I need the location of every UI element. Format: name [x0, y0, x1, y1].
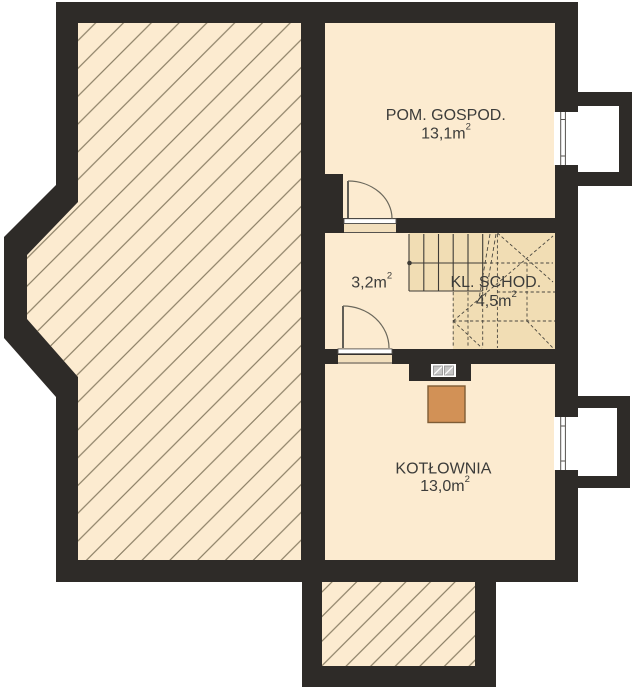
svg-text:KOTŁOWNIA: KOTŁOWNIA — [395, 460, 491, 477]
svg-text:KL. SCHOD.: KL. SCHOD. — [450, 274, 541, 291]
svg-text:3,2m2: 3,2m2 — [351, 270, 392, 291]
svg-text:4,5m2: 4,5m2 — [476, 289, 517, 310]
svg-text:13,0m2: 13,0m2 — [420, 474, 470, 495]
svg-text:13,1m2: 13,1m2 — [421, 122, 471, 143]
svg-text:POM. GOSPOD.: POM. GOSPOD. — [386, 107, 506, 124]
